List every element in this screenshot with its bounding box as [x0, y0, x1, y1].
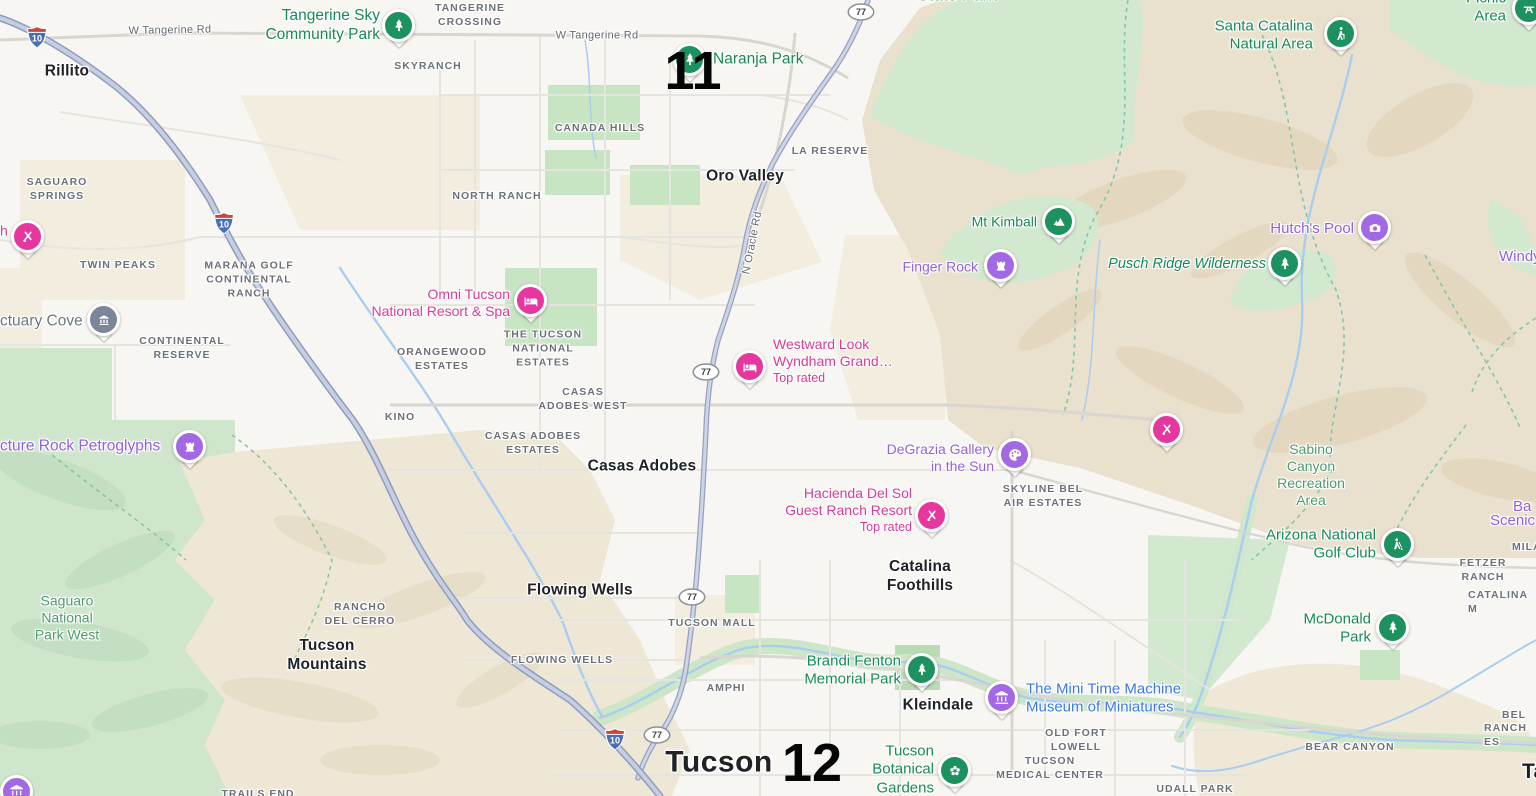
overlay-number-11: 11 — [664, 44, 721, 98]
map-canvas[interactable]: TANGERINE CROSSINGSKYRANCHNORTH RANCHCAN… — [0, 0, 1536, 796]
overlay-number-12: 12 — [782, 736, 842, 790]
overlay-layer: 1112 — [0, 0, 1536, 796]
